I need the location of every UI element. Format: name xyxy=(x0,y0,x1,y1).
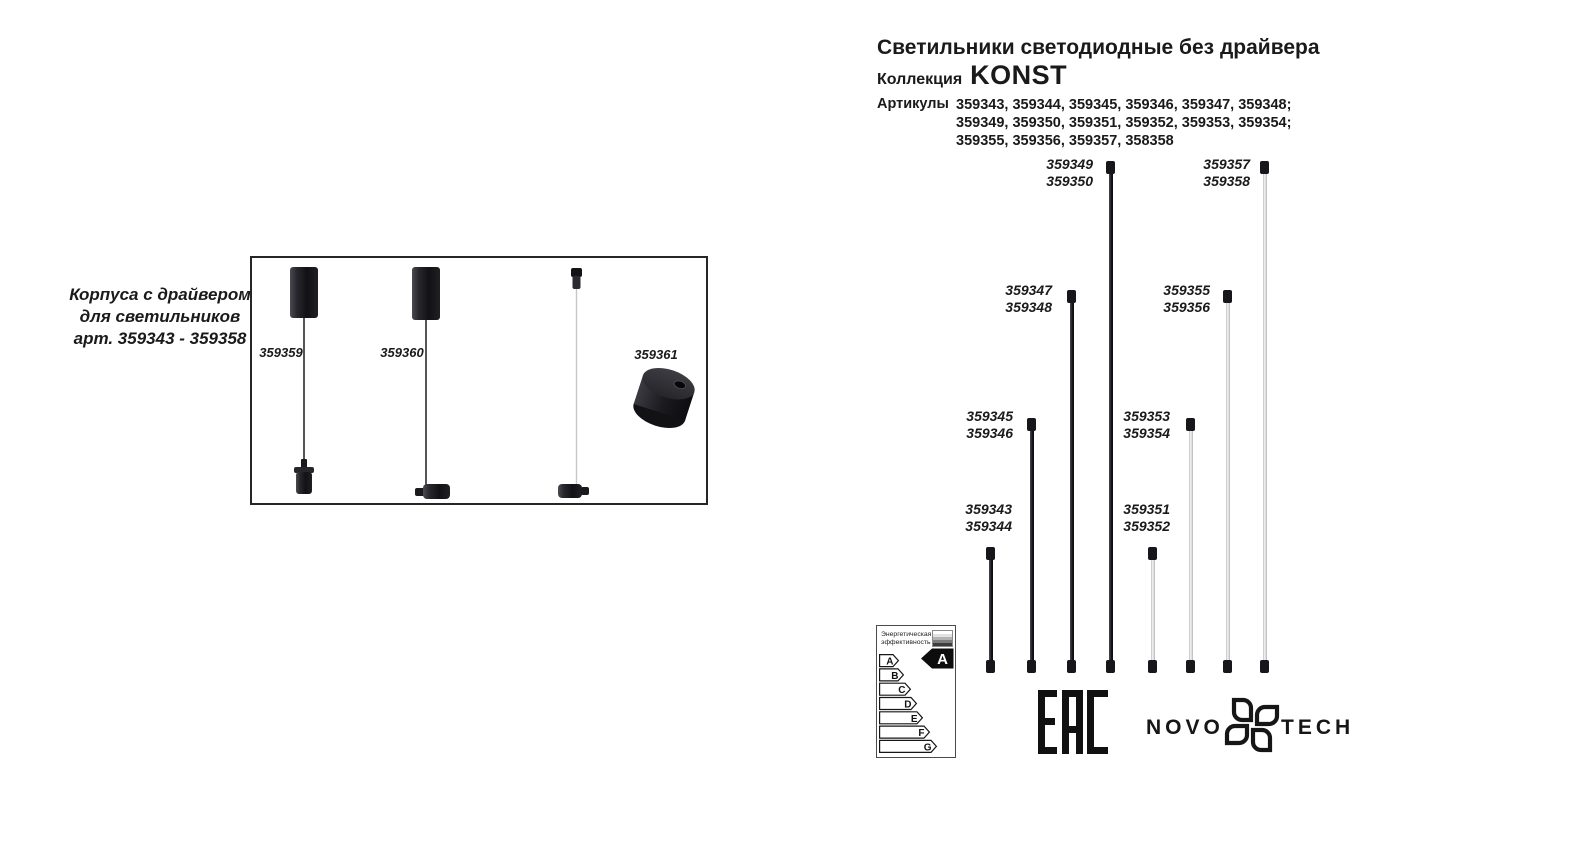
rod-label: 359347359348 xyxy=(1005,282,1052,316)
energy-class-scale: A B C D E F G xyxy=(879,654,941,754)
rod-359351-359352 xyxy=(1148,547,1157,673)
articles-line: 359349, 359350, 359351, 359352, 359353, … xyxy=(956,114,1291,132)
rod-359349-359350 xyxy=(1106,161,1115,673)
rod-tube xyxy=(1226,303,1230,660)
eac-c-bottom xyxy=(1087,747,1108,754)
flower-petal xyxy=(1234,700,1251,720)
rod-end-cap xyxy=(1223,660,1232,673)
rod-end-cap xyxy=(1148,660,1157,673)
rod-359347-359348 xyxy=(1067,290,1076,673)
eac-c-top xyxy=(1087,690,1108,697)
novotech-flower-icon xyxy=(1224,692,1280,758)
eac-c-stem xyxy=(1087,690,1094,754)
connector-body xyxy=(423,484,450,499)
caption-line: арт. 359343 - 359358 xyxy=(52,328,268,350)
class-letter: E xyxy=(911,714,918,725)
canopy-cylinder xyxy=(290,267,318,318)
rod-end-cap xyxy=(1067,290,1076,303)
flower-petal xyxy=(1253,730,1270,750)
surface-drum-359361-image xyxy=(624,358,704,438)
rod-end-cap xyxy=(1027,418,1036,431)
datasheet-page: Корпуса с драйвером для светильников арт… xyxy=(0,0,1587,858)
suspension-kit-image xyxy=(553,262,595,504)
canopy-cylinder xyxy=(412,267,440,320)
collection-name: KONST xyxy=(970,60,1067,91)
eac-a-top xyxy=(1062,690,1083,697)
rod-end-cap xyxy=(986,547,995,560)
class-letter: D xyxy=(904,700,911,711)
brand-name-suffix: TECH xyxy=(1281,716,1354,740)
rod-359357-359358 xyxy=(1260,161,1269,673)
class-letter: B xyxy=(891,671,898,682)
flower-petal xyxy=(1257,707,1277,724)
collection-label: Коллекция xyxy=(877,71,962,89)
rod-end-cap xyxy=(1106,161,1115,174)
rod-end-cap xyxy=(1106,660,1115,673)
rod-label: 359357359358 xyxy=(1203,156,1250,190)
rod-tube xyxy=(989,560,993,660)
connector-body xyxy=(296,472,312,494)
energy-gradient-bar xyxy=(932,630,953,647)
articles-line: 359343, 359344, 359345, 359346, 359347, … xyxy=(956,96,1291,114)
eac-mark: EAC xyxy=(1038,690,1108,754)
rod-359355-359356 xyxy=(1223,290,1232,673)
class-letter: G xyxy=(924,742,932,753)
collection-row: Коллекция KONST xyxy=(877,60,1067,91)
articles-list: 359343, 359344, 359345, 359346, 359347, … xyxy=(956,96,1291,150)
rod-tube xyxy=(1151,560,1155,660)
rod-tube xyxy=(1030,431,1034,660)
cord-neck xyxy=(301,459,307,468)
rod-end-cap xyxy=(1067,660,1076,673)
class-letter: A xyxy=(886,657,893,668)
rod-359345-359346 xyxy=(1027,418,1036,673)
connector-nub xyxy=(581,487,589,495)
energy-label-title: Энергетическая эффективность xyxy=(881,631,931,647)
articles-line: 359355, 359356, 359357, 358358 xyxy=(956,132,1291,150)
eac-a-mid xyxy=(1062,726,1083,733)
rod-label: 359343359344 xyxy=(965,501,1012,535)
eac-a-left-leg xyxy=(1062,690,1069,754)
rod-label: 359345359346 xyxy=(966,408,1013,442)
eac-e-bottom xyxy=(1038,747,1057,754)
rod-tube xyxy=(1070,303,1074,660)
rod-label: 359355359356 xyxy=(1163,282,1210,316)
eac-a-right-leg xyxy=(1076,690,1083,754)
energy-efficiency-label: Энергетическая эффективность A B C D E F… xyxy=(876,625,956,758)
caption-line: Корпуса с драйвером xyxy=(52,284,268,306)
rod-end-cap xyxy=(1223,290,1232,303)
drum-group xyxy=(629,362,698,434)
caption-line: для светильников xyxy=(52,306,268,328)
rod-tube xyxy=(1189,431,1193,660)
rod-end-cap xyxy=(986,660,995,673)
rod-tube xyxy=(1263,174,1267,660)
ceiling-cap-body xyxy=(573,276,581,289)
connector-body xyxy=(558,484,582,498)
rod-end-cap xyxy=(1260,161,1269,174)
rod-tube xyxy=(1109,174,1113,660)
ceiling-cap xyxy=(571,268,582,277)
brand-name-prefix: NOVO xyxy=(1146,716,1224,740)
eac-e-mid xyxy=(1038,718,1055,725)
rod-end-cap xyxy=(1027,660,1036,673)
class-letter: C xyxy=(898,685,905,696)
housings-caption: Корпуса с драйвером для светильников арт… xyxy=(52,284,268,350)
rod-359343-359344 xyxy=(986,547,995,673)
rod-label: 359353359354 xyxy=(1123,408,1170,442)
page-title: Светильники светодиодные без драйвера xyxy=(877,36,1320,60)
pendant-housing-359359-image xyxy=(285,262,325,504)
rod-label: 359351359352 xyxy=(1123,501,1170,535)
rod-end-cap xyxy=(1260,660,1269,673)
rating-letter: A xyxy=(937,651,948,668)
eac-e-top xyxy=(1038,690,1057,697)
pendant-housing-359360-image xyxy=(406,262,456,504)
flower-petal xyxy=(1227,726,1247,743)
rod-359353-359354 xyxy=(1186,418,1195,673)
rating-arrow: A xyxy=(921,648,954,669)
rod-label: 359349359350 xyxy=(1046,156,1093,190)
rod-end-cap xyxy=(1186,660,1195,673)
class-letter: F xyxy=(918,728,924,739)
articles-label: Артикулы xyxy=(877,96,949,112)
class-arrow-c xyxy=(880,683,911,695)
rod-end-cap xyxy=(1148,547,1157,560)
rod-end-cap xyxy=(1186,418,1195,431)
